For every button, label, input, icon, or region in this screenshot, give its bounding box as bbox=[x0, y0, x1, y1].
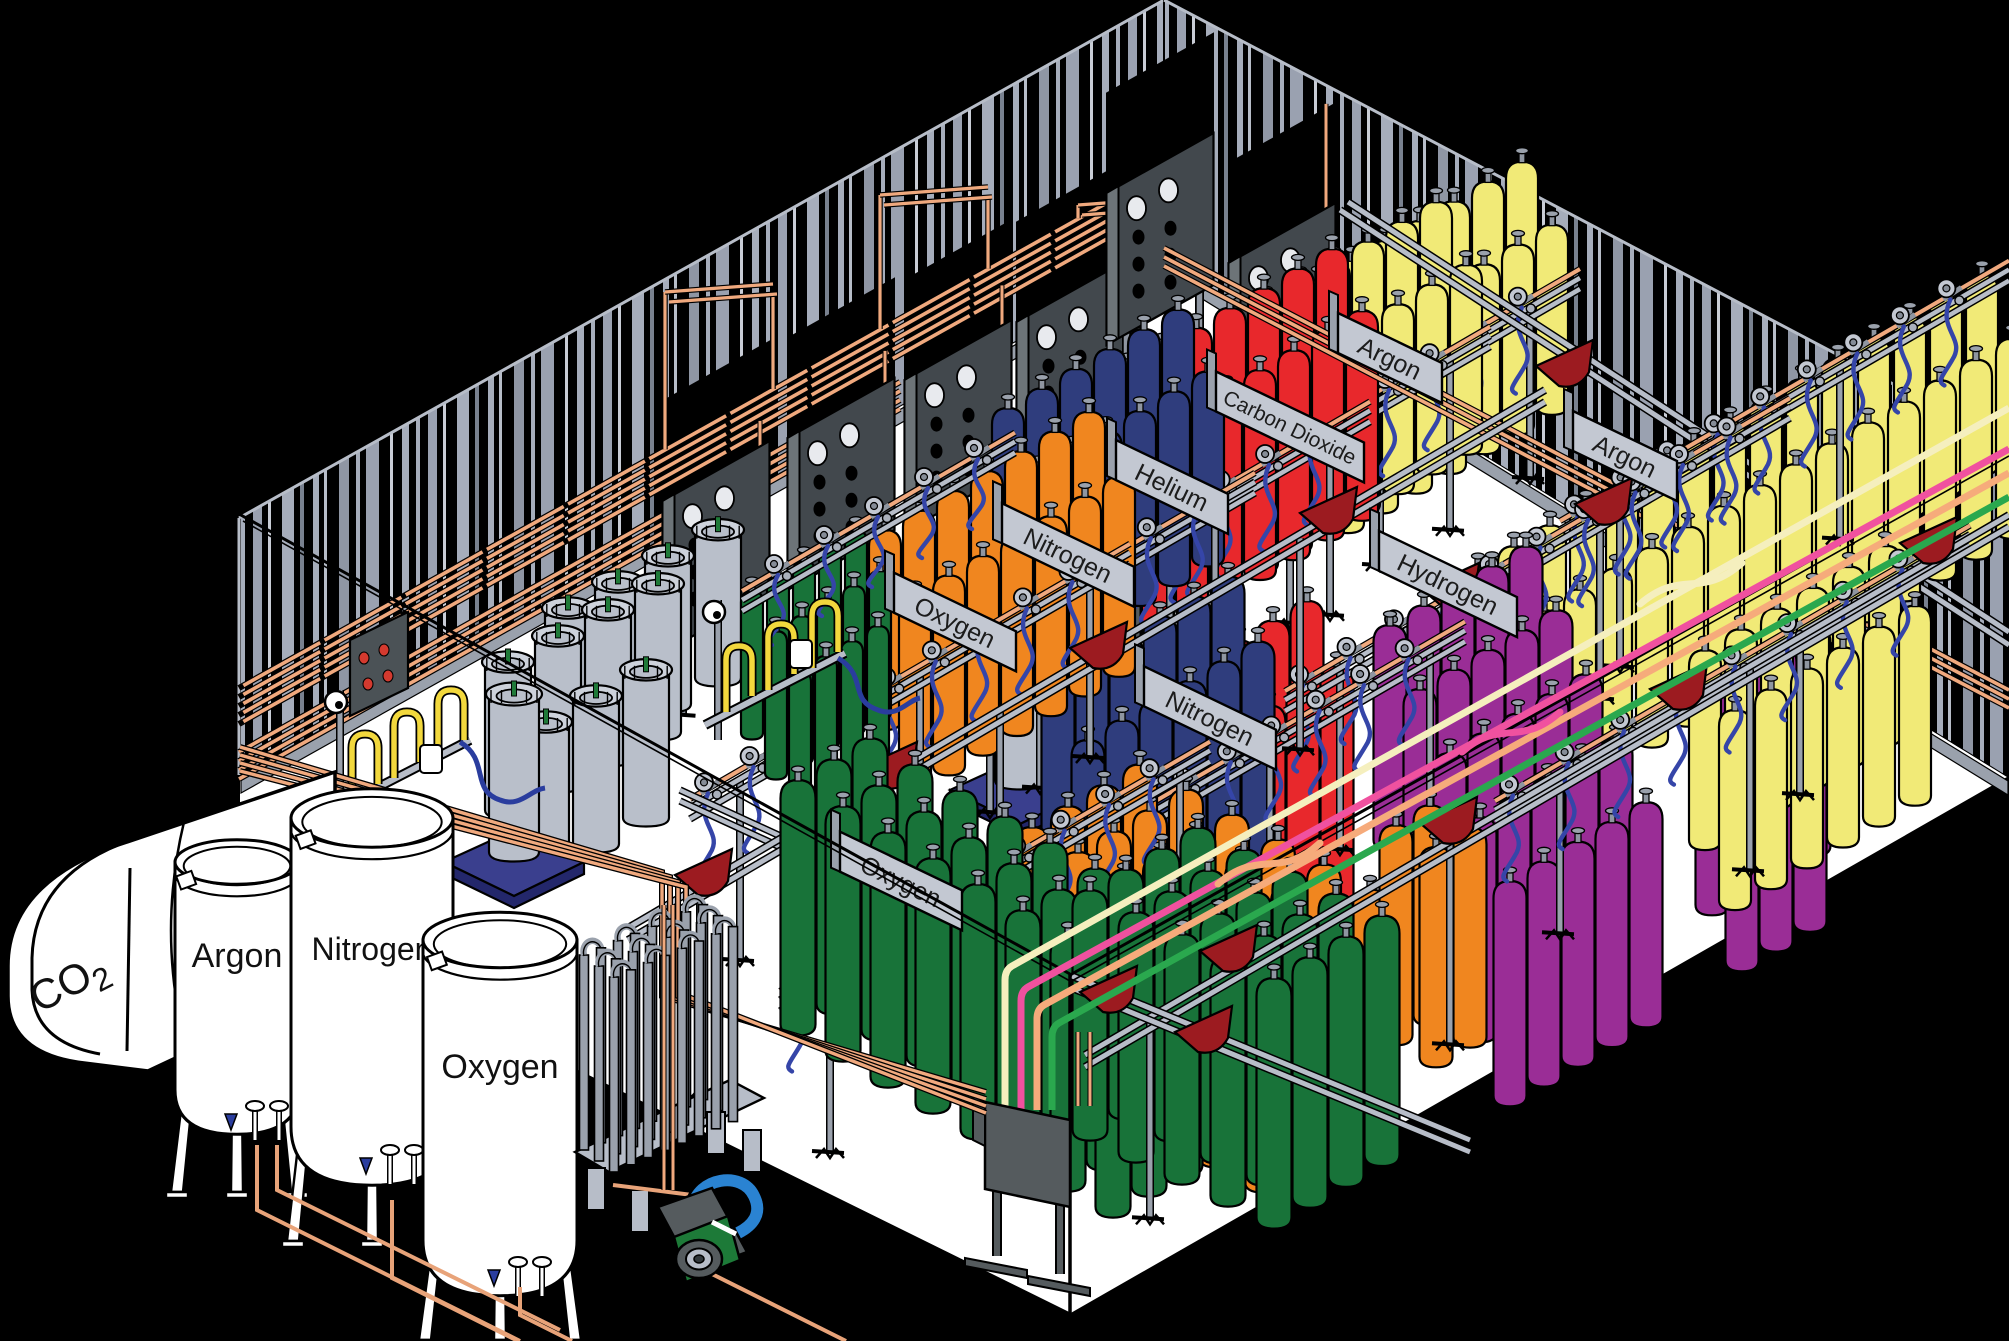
svg-text:Oxygen: Oxygen bbox=[441, 1048, 558, 1086]
svg-text:Argon: Argon bbox=[192, 937, 283, 975]
svg-text:Nitrogen: Nitrogen bbox=[312, 931, 433, 967]
